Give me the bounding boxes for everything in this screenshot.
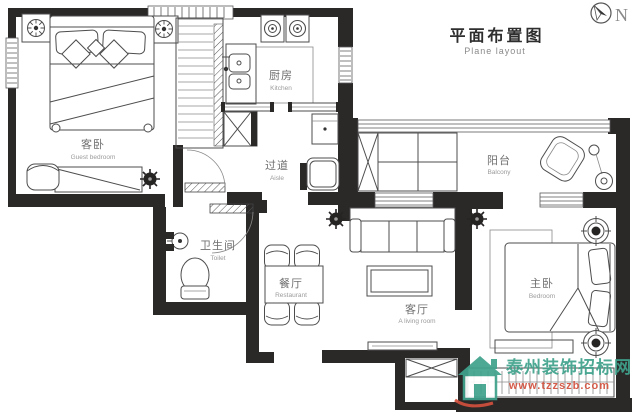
- label-aisle-zh: 过道: [265, 158, 289, 172]
- room-balcony: [358, 133, 613, 191]
- label-living-zh: 客厅: [405, 302, 429, 316]
- coffee-table: [367, 266, 432, 296]
- stool: [27, 164, 59, 190]
- bed-bench: [495, 340, 573, 353]
- label-toilet-zh: 卫生间: [200, 238, 236, 252]
- fridge: [312, 114, 338, 144]
- stove: [261, 15, 309, 42]
- hall-wardrobe: [176, 18, 223, 148]
- watermark-site-name: 泰州装饰招标网: [506, 357, 632, 377]
- window-left: [6, 38, 18, 88]
- label-dining-en: Restaurant: [275, 292, 307, 299]
- window-kitchen: [339, 47, 352, 83]
- window-master-divider: [540, 193, 583, 207]
- wardrobe-rail: [214, 24, 223, 146]
- washbasin: [165, 232, 188, 251]
- label-kitchen-en: Kitchen: [270, 85, 292, 92]
- cabinet-under-counter: [224, 112, 257, 146]
- label-master-bedroom-en: Bedroom: [529, 293, 555, 300]
- watermark-site-url: www.tzzszb.com: [508, 380, 610, 392]
- north-compass-icon: N: [591, 3, 628, 25]
- bedside-lamp-icon: [28, 20, 45, 37]
- page-title: 平面布置图: [449, 26, 544, 45]
- dining-chair: [295, 245, 320, 269]
- label-guest-bedroom-en: Guest bedroom: [71, 154, 116, 161]
- window-living-divider: [375, 193, 433, 207]
- dining-chair: [265, 301, 290, 325]
- label-dining-zh: 餐厅: [279, 276, 303, 290]
- bedside-lamp-icon: [581, 216, 611, 246]
- washing-machine: [300, 158, 339, 190]
- plant-icon: [326, 209, 346, 229]
- label-balcony-zh: 阳台: [487, 153, 511, 167]
- label-living-en: A living room: [398, 318, 435, 325]
- kitchen-sliding-door: [221, 102, 340, 112]
- floor-plan-page: 客卧 Guest bedroom 厨房 Kitchen 过道 Aisle 阳台 …: [0, 0, 632, 416]
- guest-bed: [50, 16, 154, 132]
- label-master-bedroom-zh: 主卧: [530, 277, 554, 290]
- lounge-chair: [537, 133, 588, 184]
- balcony-cabinet: [358, 133, 457, 191]
- plan-title: 平面布置图 Plane layout: [449, 26, 544, 56]
- sofa: [350, 208, 455, 252]
- corridor-door: [185, 150, 225, 192]
- plant-icon: [140, 169, 160, 189]
- dining-chair: [265, 245, 290, 269]
- label-kitchen-zh: 厨房: [269, 69, 293, 82]
- north-label: N: [615, 5, 628, 25]
- page-subtitle: Plane layout: [464, 46, 526, 56]
- label-toilet-en: Toilet: [210, 255, 225, 262]
- master-bed: [505, 243, 615, 332]
- label-guest-bedroom-zh: 客卧: [81, 137, 105, 151]
- label-balcony-en: Balcony: [487, 169, 511, 176]
- dining-chair: [295, 301, 320, 325]
- bedside-lamp-icon: [156, 21, 173, 38]
- floor-plan-drawing: 客卧 Guest bedroom 厨房 Kitchen 过道 Aisle 阳台 …: [0, 0, 632, 416]
- window-balcony-glazing: [358, 120, 610, 132]
- plant-icon: [467, 209, 487, 229]
- room-living: [326, 208, 458, 402]
- toilet-fixture: [181, 258, 209, 299]
- label-aisle-en: Aisle: [270, 175, 284, 182]
- floor-lamp: [589, 145, 613, 190]
- room-guest-bedroom: [22, 14, 178, 192]
- room-aisle: [185, 114, 339, 192]
